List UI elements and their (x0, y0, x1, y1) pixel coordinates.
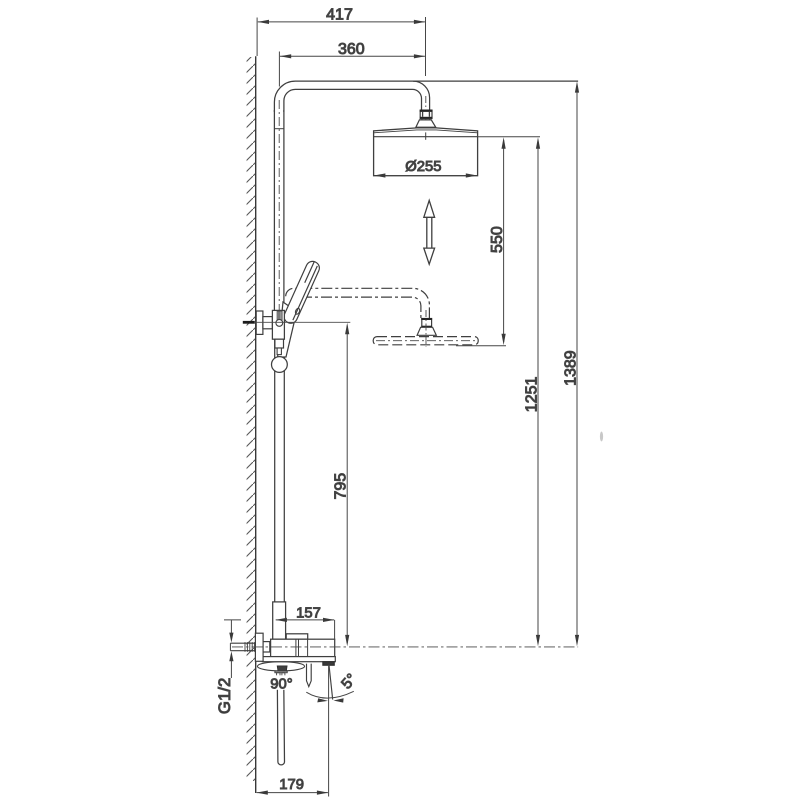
svg-text:1389: 1389 (562, 350, 579, 386)
svg-text:179: 179 (279, 777, 304, 793)
svg-text:90°: 90° (270, 677, 292, 693)
svg-text:417: 417 (326, 6, 353, 23)
svg-text:5°: 5° (338, 670, 360, 692)
svg-text:360: 360 (338, 41, 365, 58)
svg-text:1251: 1251 (523, 377, 540, 413)
svg-text:157: 157 (296, 605, 321, 621)
svg-text:Ø255: Ø255 (405, 159, 441, 175)
svg-text:G1/2: G1/2 (215, 678, 234, 714)
svg-text:795: 795 (333, 473, 350, 500)
svg-text:550: 550 (489, 226, 506, 253)
